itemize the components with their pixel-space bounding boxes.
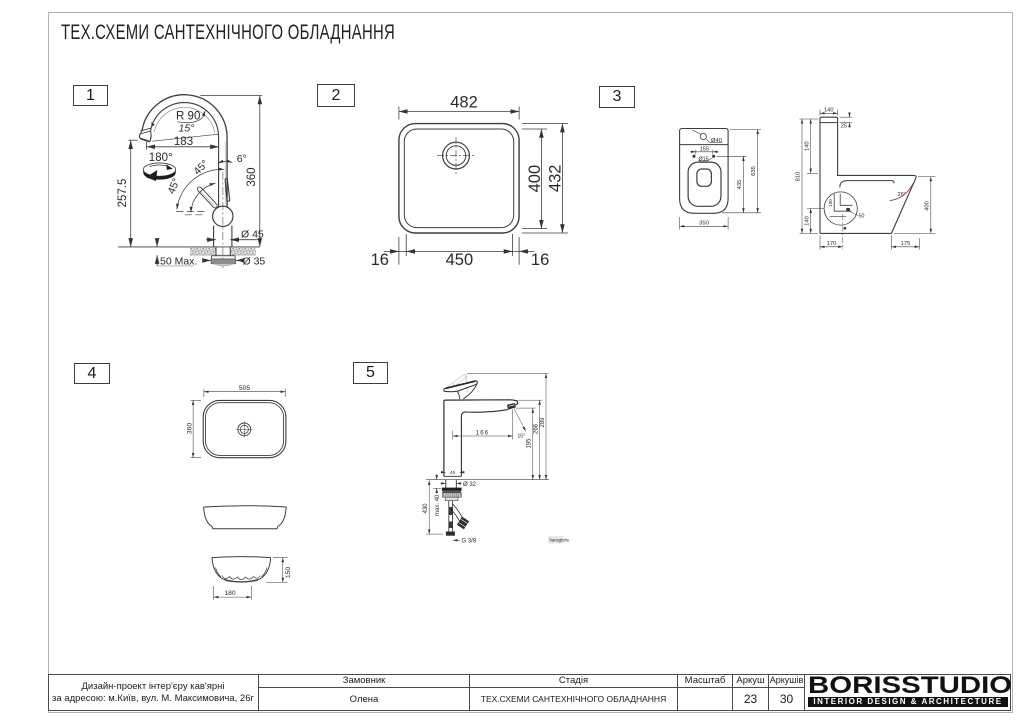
svg-text:635: 635 [751,166,757,176]
svg-text:150: 150 [285,567,292,579]
svg-text:hansgrohe: hansgrohe [550,538,570,543]
svg-text:257.5: 257.5 [117,179,129,208]
svg-text:max. 40: max. 40 [435,494,441,516]
svg-text:Ø 45: Ø 45 [241,228,264,240]
svg-text:Ø 35: Ø 35 [243,255,266,267]
svg-text:505: 505 [239,385,251,392]
svg-text:R 90: R 90 [176,110,200,122]
svg-text:15°: 15° [518,434,526,440]
svg-text:170: 170 [827,241,837,247]
svg-text:360: 360 [186,423,193,435]
svg-text:Ø 32: Ø 32 [463,482,477,488]
svg-text:16: 16 [531,251,549,269]
svg-text:45: 45 [450,470,456,475]
svg-text:140: 140 [804,141,810,151]
svg-text:400: 400 [924,201,930,211]
svg-text:482: 482 [450,94,478,112]
svg-text:16: 16 [371,251,389,269]
svg-text:G 3/8: G 3/8 [462,539,477,545]
svg-text:266: 266 [533,423,539,434]
svg-text:289: 289 [540,417,546,428]
svg-text:360: 360 [246,167,258,186]
svg-text:Ø40: Ø40 [711,138,722,144]
svg-text:6°: 6° [237,153,247,165]
svg-text:50 Max.: 50 Max. [160,255,197,267]
svg-text:Ø15: Ø15 [699,156,709,162]
svg-text:810: 810 [796,172,802,182]
svg-text:50: 50 [859,214,865,220]
svg-text:140: 140 [824,108,834,114]
svg-text:15°: 15° [179,122,195,134]
svg-text:25: 25 [841,124,847,130]
svg-text:100: 100 [828,199,833,207]
svg-text:180°: 180° [149,152,173,164]
svg-text:140: 140 [804,216,810,226]
svg-text:400: 400 [526,165,544,193]
svg-text:26°: 26° [898,192,907,198]
svg-text:45°: 45° [191,158,211,178]
svg-text:450: 450 [446,251,474,269]
svg-text:45°: 45° [166,177,183,196]
svg-text:180: 180 [224,590,236,597]
svg-text:350: 350 [699,221,709,227]
svg-text:435: 435 [737,180,743,190]
svg-text:155: 155 [699,146,709,152]
svg-text:432: 432 [547,165,565,193]
svg-text:175: 175 [901,241,911,247]
svg-text:430: 430 [423,503,429,514]
svg-text:195: 195 [527,438,533,449]
svg-text:166: 166 [476,430,490,436]
